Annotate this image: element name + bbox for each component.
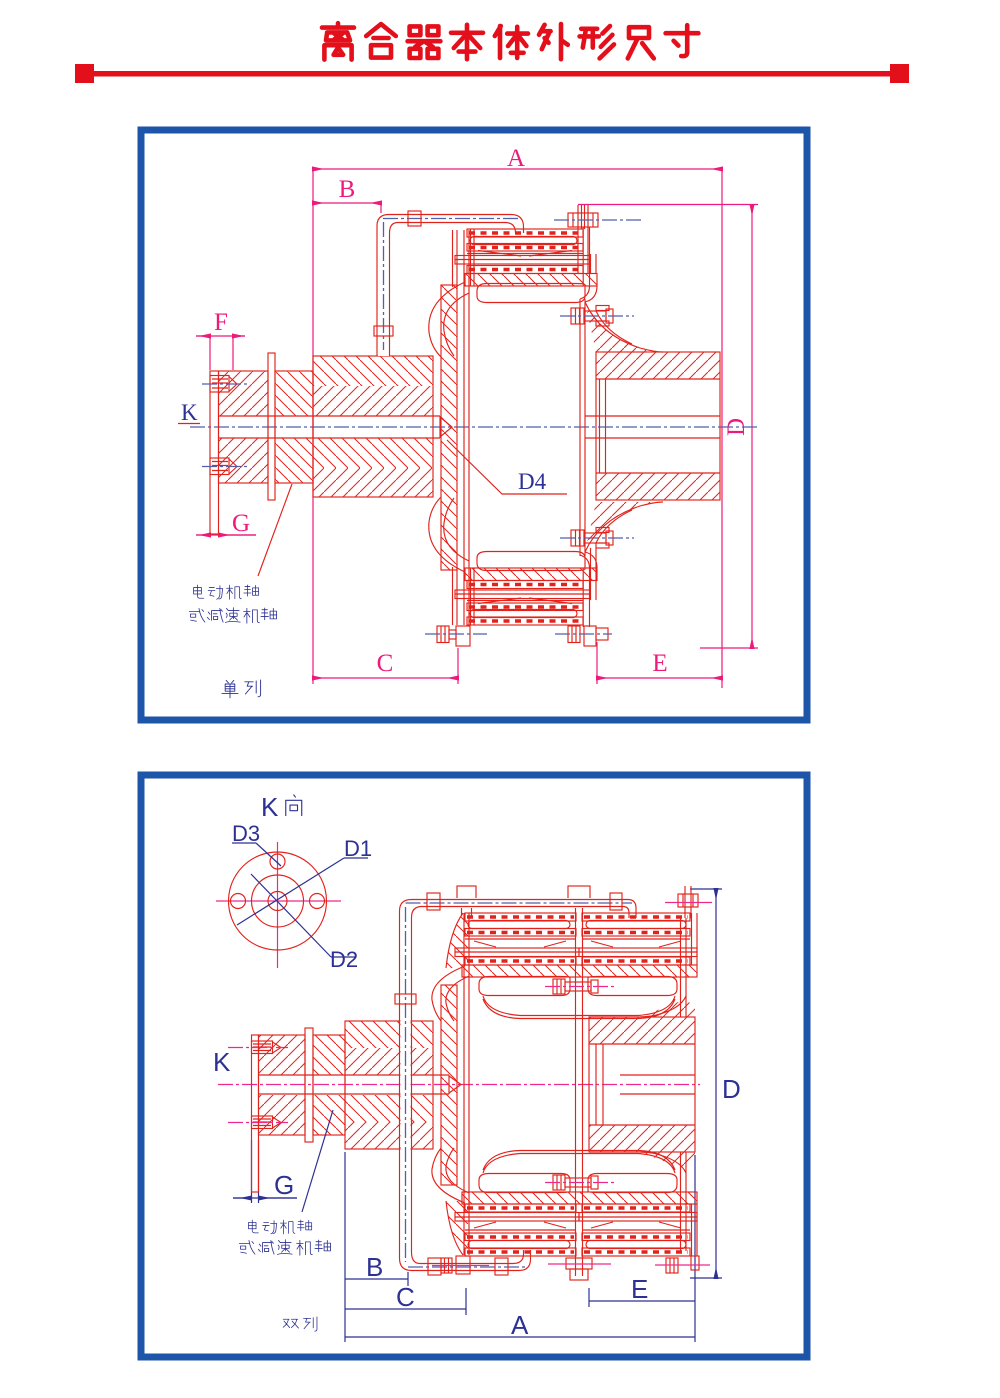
svg-text:B: B <box>339 176 356 203</box>
svg-text:K: K <box>261 792 279 822</box>
svg-text:D: D <box>722 1074 741 1104</box>
svg-text:G: G <box>274 1170 294 1200</box>
svg-text:F: F <box>214 309 228 336</box>
svg-text:K: K <box>213 1047 231 1077</box>
svg-text:D1: D1 <box>344 836 372 861</box>
svg-text:B: B <box>366 1252 383 1282</box>
svg-text:K: K <box>181 400 198 425</box>
svg-text:G: G <box>232 510 250 537</box>
svg-text:C: C <box>396 1282 415 1312</box>
svg-text:E: E <box>652 650 667 677</box>
svg-text:D3: D3 <box>232 821 260 846</box>
svg-text:D4: D4 <box>518 469 547 494</box>
svg-text:C: C <box>377 650 394 677</box>
svg-text:E: E <box>631 1274 648 1304</box>
svg-text:D2: D2 <box>330 947 358 972</box>
svg-text:A: A <box>511 1310 529 1340</box>
svg-text:A: A <box>507 145 525 172</box>
